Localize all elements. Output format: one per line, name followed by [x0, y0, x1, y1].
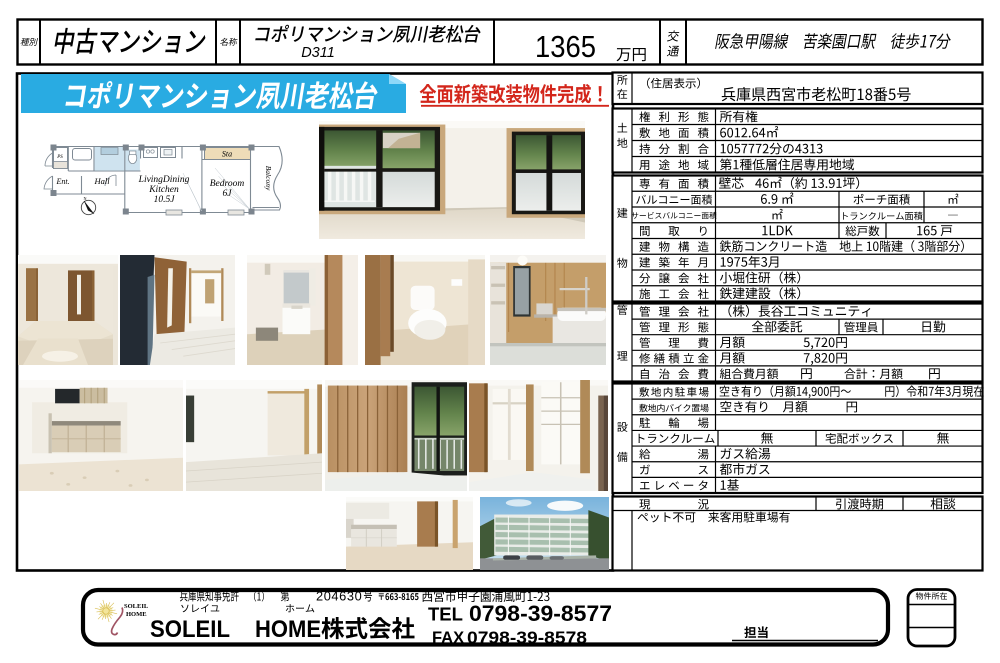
svg-text:0798-39-8577: 0798-39-8577: [469, 601, 612, 626]
svg-text:0798-39-8578: 0798-39-8578: [467, 628, 587, 648]
svg-text:SOLEIL: SOLEIL: [150, 616, 230, 643]
svg-text:PS: PS: [56, 155, 63, 160]
svg-text:HOME: HOME: [126, 611, 147, 618]
svg-text:Hall: Hall: [93, 176, 110, 186]
svg-text:FAX: FAX: [432, 629, 464, 647]
svg-text:LivingDining: LivingDining: [138, 175, 190, 185]
svg-text:N: N: [83, 196, 86, 201]
svg-text:6J: 6J: [223, 189, 233, 199]
svg-text:D311: D311: [301, 45, 335, 61]
svg-text:Kitchen: Kitchen: [148, 185, 179, 195]
svg-text:204630: 204630: [316, 589, 362, 604]
svg-text:Ent.: Ent.: [55, 177, 69, 186]
svg-text:Sta: Sta: [222, 150, 232, 159]
svg-text:TEL: TEL: [428, 604, 463, 625]
svg-text:HOME: HOME: [255, 616, 321, 643]
svg-text:1365: 1365: [535, 30, 596, 64]
svg-text:Bedroom: Bedroom: [210, 179, 245, 189]
svg-text:Balcony: Balcony: [264, 166, 273, 191]
svg-text:10.5J: 10.5J: [154, 195, 176, 205]
svg-text:SOLEIL: SOLEIL: [124, 603, 149, 610]
